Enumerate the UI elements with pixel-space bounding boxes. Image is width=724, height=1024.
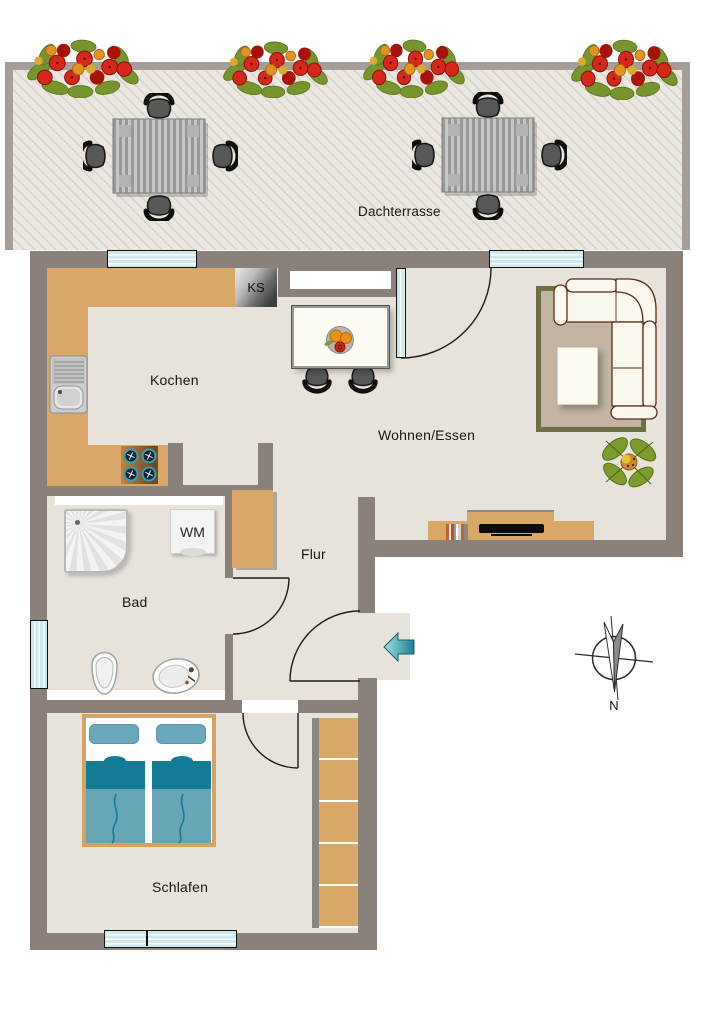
blanket-right [152,789,211,843]
terrace-label: Dachterrasse [358,204,441,219]
wall-bedroom-top-left [30,700,242,713]
wall-kitchen-stub-right [258,443,273,488]
tv-stand [491,534,532,536]
stove [121,446,158,484]
bath-window [30,620,48,689]
terrace-table-set-2 [412,92,567,220]
dining-table [292,306,389,368]
wall-hall-right [358,497,375,613]
pillow-left [89,724,139,744]
fridge: KS [235,268,277,307]
coffee-table [557,347,598,405]
wall-kitchen-stub-left [168,443,183,488]
compass-icon [572,612,658,704]
terrace-table-set-1 [83,93,238,221]
flower-box-icon [362,36,467,98]
wardrobe-shadow [312,718,319,928]
wall-bedroom-top-right [298,700,377,713]
books-icon [446,524,468,540]
compass-north-label: N [604,698,624,713]
bath-label: Bad [122,594,148,610]
flower-box-icon [570,36,680,100]
blanket-edge-right [152,761,211,789]
terrace-door-leaf [396,268,406,358]
flower-box-icon [222,38,330,98]
wall-bath-right-lower [225,634,233,700]
blanket-edge-left [86,761,145,789]
washing-machine-label: WM [180,524,205,540]
kitchen-counter-top [47,268,235,307]
wardrobe [312,718,358,928]
blanket-left [86,789,145,843]
tv-icon [479,524,544,533]
shower [64,509,128,573]
bedroom-window [104,930,237,948]
wall-right-upper [666,251,683,557]
hall-cabinet [232,490,273,568]
washing-machine-door [180,548,206,556]
wardrobe-segments [319,718,358,928]
bedroom-window-divider [146,931,148,946]
wall-right-lower [358,678,377,950]
floor-plan: Dachterrasse KS WM [0,0,724,1024]
living-window [489,250,584,268]
wall-left [30,251,47,950]
wall-living-bottom [374,540,683,557]
bath-top-gap [55,496,223,505]
pillow-right [156,724,206,744]
washing-machine: WM [170,509,215,554]
bedroom-label: Schlafen [152,879,208,895]
fridge-label: KS [247,280,264,295]
kitchen-label: Kochen [150,372,199,388]
bath-bottom-gap [55,690,223,700]
entrance-arrow-icon [382,628,416,668]
hall-label: Flur [301,546,326,562]
pass-through-opening [290,271,391,289]
kitchen-window [107,250,197,268]
living-label: Wohnen/Essen [378,427,475,443]
shower-drain-icon [75,520,80,525]
flower-box-icon [26,36,141,98]
